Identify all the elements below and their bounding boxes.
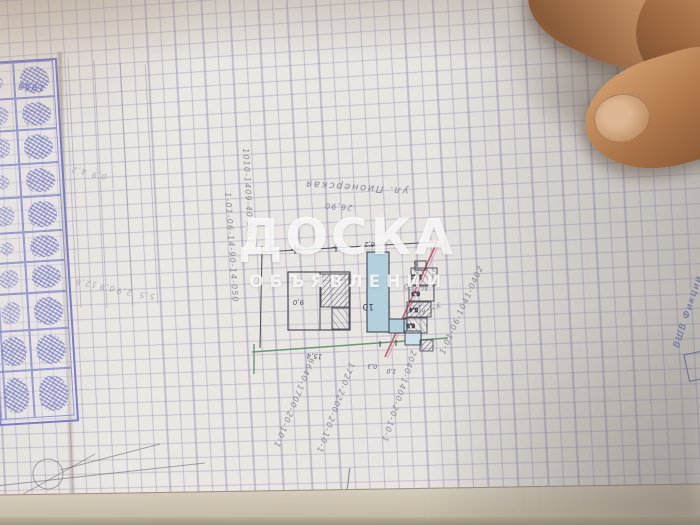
page-stack-shadow bbox=[0, 517, 700, 525]
watermark-subtitle: ОБЪЯВЛЕНИЙ bbox=[238, 272, 458, 292]
photo-of-site-plan: 1958 4,2 0,9 12,6 0,9 2,9 5,5 bbox=[0, 0, 700, 525]
table-cell bbox=[27, 291, 69, 330]
table-cell bbox=[0, 262, 27, 295]
table-cell bbox=[0, 330, 32, 372]
table-cell bbox=[0, 197, 23, 234]
table-cell bbox=[21, 195, 63, 232]
dim-b-label: 1,0 bbox=[386, 367, 396, 375]
year-note: 1958 bbox=[17, 80, 45, 92]
table-cell bbox=[19, 162, 61, 197]
table-cell bbox=[25, 260, 67, 293]
table-cell bbox=[17, 128, 59, 164]
table-cell bbox=[29, 328, 71, 370]
gate-ticks bbox=[380, 340, 396, 347]
table-cell bbox=[0, 293, 29, 332]
dim-a-label: 0,3 bbox=[367, 362, 377, 370]
building-number: 10 bbox=[362, 301, 374, 311]
table-cell bbox=[0, 370, 35, 420]
watermark-title: ДОСКА bbox=[232, 208, 462, 266]
table-cell bbox=[15, 96, 57, 130]
table-cell bbox=[0, 232, 25, 264]
house-dim-label: 9,0 bbox=[292, 298, 304, 306]
shed-dim: 5,4 bbox=[409, 306, 418, 312]
table-cell bbox=[0, 130, 19, 166]
table-cell bbox=[23, 230, 65, 262]
table-cell bbox=[0, 164, 21, 199]
table-cell bbox=[32, 368, 75, 418]
shed-dim: 6,9 bbox=[406, 322, 415, 328]
